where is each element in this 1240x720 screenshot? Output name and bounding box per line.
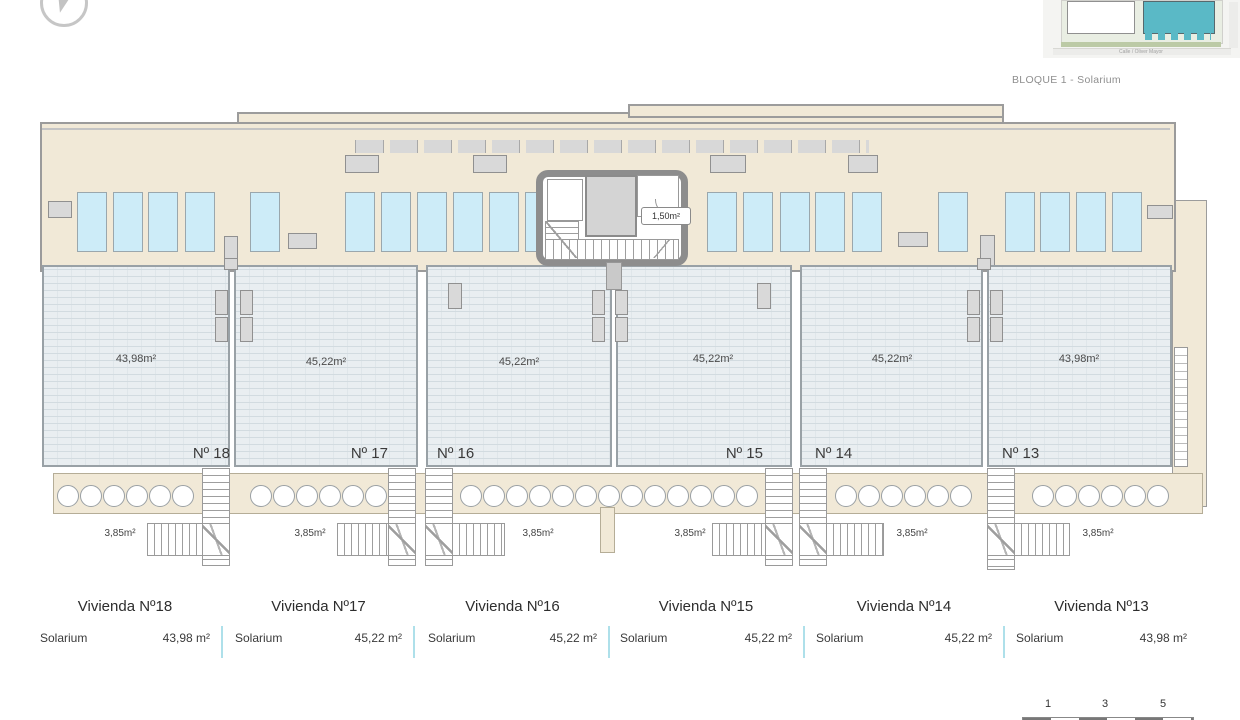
pergola-column bbox=[1124, 485, 1146, 507]
floorplan-page: Calle / Oliver Mayor BLOQUE 1 - Solarium… bbox=[0, 0, 1240, 720]
stair-area-15: 3,85m² bbox=[665, 528, 715, 539]
legend-title: Vivienda Nº14 bbox=[806, 598, 1002, 615]
scalebar-tick: 5 bbox=[1160, 698, 1166, 710]
stair-area-13: 3,85m² bbox=[1073, 528, 1123, 539]
sunbed-icon bbox=[77, 192, 107, 252]
pergola-column bbox=[149, 485, 171, 507]
sunbed-icon bbox=[1112, 192, 1142, 252]
sunbed-icon bbox=[1076, 192, 1106, 252]
sunbed-icon bbox=[250, 192, 280, 252]
unit-stair-flight bbox=[452, 523, 505, 556]
unit-stair-flight bbox=[712, 523, 766, 556]
solarium-floorplan: Nº 18 Nº 17 Nº 16 Nº 15 Nº 14 Nº 13 43,9… bbox=[35, 95, 1215, 580]
pergola-column bbox=[881, 485, 903, 507]
sunbed-icon bbox=[113, 192, 143, 252]
legend-row-label: Solarium bbox=[1016, 631, 1063, 645]
legend-value: 45,22 m² bbox=[355, 631, 402, 645]
unit-stair-flight bbox=[337, 523, 389, 556]
wall-stub bbox=[898, 232, 928, 247]
unit-stair-winder bbox=[425, 523, 453, 556]
stair-area-14: 3,85m² bbox=[887, 528, 937, 539]
legend-col-15: Vivienda Nº15 Solarium45,22 m² bbox=[610, 598, 802, 651]
sunbed-icon bbox=[707, 192, 737, 252]
planter bbox=[967, 290, 980, 315]
legend-title: Vivienda Nº16 bbox=[418, 598, 607, 615]
skylight bbox=[473, 155, 507, 173]
legend-title: Vivienda Nº15 bbox=[610, 598, 802, 615]
legend-divider bbox=[1003, 626, 1005, 658]
unit-number-14: Nº 14 bbox=[815, 445, 875, 462]
unit-stair-winder bbox=[202, 523, 230, 556]
pergola-column bbox=[713, 485, 735, 507]
pergola-column bbox=[319, 485, 341, 507]
core-bottom-stub bbox=[606, 262, 622, 290]
pergola-column bbox=[172, 485, 194, 507]
sunbed-icon bbox=[938, 192, 968, 252]
planter bbox=[592, 317, 605, 342]
unit-number-16: Nº 16 bbox=[437, 445, 497, 462]
terrace bbox=[42, 265, 230, 467]
planter bbox=[967, 317, 980, 342]
site-minimap: Calle / Oliver Mayor bbox=[1043, 0, 1240, 58]
legend-value: 45,22 m² bbox=[745, 631, 792, 645]
wall-stub bbox=[288, 233, 317, 249]
terrace-area-17: 45,22m² bbox=[276, 356, 376, 368]
core-stairs-winder bbox=[545, 221, 577, 258]
skylight bbox=[848, 155, 878, 173]
pergola-column bbox=[506, 485, 528, 507]
legend-col-13: Vivienda Nº13 Solarium43,98 m² bbox=[1006, 598, 1197, 651]
sunbed-icon bbox=[1040, 192, 1070, 252]
deck-inner-wall-line bbox=[42, 128, 1170, 130]
legend-title: Vivienda Nº13 bbox=[1006, 598, 1197, 615]
pergola-column bbox=[103, 485, 125, 507]
pergola-column bbox=[1055, 485, 1077, 507]
sunbed-icon bbox=[345, 192, 375, 252]
pergola-column bbox=[858, 485, 880, 507]
legend-divider bbox=[608, 626, 610, 658]
unit-stair-flight bbox=[147, 523, 203, 556]
sunbed-icon bbox=[780, 192, 810, 252]
planter bbox=[990, 317, 1003, 342]
pergola-column bbox=[1147, 485, 1169, 507]
stair-area-17: 3,85m² bbox=[285, 528, 335, 539]
pergola-column bbox=[342, 485, 364, 507]
minimap-building-1-highlighted bbox=[1143, 1, 1215, 34]
unit-stair-winder bbox=[765, 523, 793, 556]
legend: Vivienda Nº18 Solarium43,98 m² Vivienda … bbox=[0, 598, 1240, 660]
unit-stair-winder bbox=[799, 523, 827, 556]
pergola-column bbox=[950, 485, 972, 507]
pergola-column bbox=[529, 485, 551, 507]
pergola-column bbox=[57, 485, 79, 507]
legend-col-16: Vivienda Nº16 Solarium45,22 m² bbox=[418, 598, 607, 651]
pergola-center-post bbox=[600, 507, 615, 553]
legend-col-14: Vivienda Nº14 Solarium45,22 m² bbox=[806, 598, 1002, 651]
legend-value: 45,22 m² bbox=[945, 631, 992, 645]
minimap-building-1-terraces bbox=[1145, 33, 1211, 40]
pergola-column bbox=[835, 485, 857, 507]
unit-stair-flight bbox=[826, 523, 884, 556]
pergola-column bbox=[126, 485, 148, 507]
legend-col-18: Vivienda Nº18 Solarium43,98 m² bbox=[30, 598, 220, 651]
pergola-column bbox=[460, 485, 482, 507]
pergola-column bbox=[296, 485, 318, 507]
unit-stair-winder bbox=[987, 523, 1015, 556]
minimap-side-road bbox=[1229, 2, 1238, 48]
legend-value: 43,98 m² bbox=[1140, 631, 1187, 645]
legend-divider bbox=[803, 626, 805, 658]
sunbed-icon bbox=[489, 192, 519, 252]
unit-number-15: Nº 15 bbox=[703, 445, 763, 462]
legend-divider bbox=[221, 626, 223, 658]
skylight bbox=[710, 155, 746, 173]
pergola-column bbox=[1032, 485, 1054, 507]
planter bbox=[448, 283, 462, 309]
unit-number-13: Nº 13 bbox=[1002, 445, 1062, 462]
elevator-shaft bbox=[585, 175, 637, 237]
wall-stub bbox=[48, 201, 72, 218]
minimap-street-label: Calle / Oliver Mayor bbox=[1081, 49, 1201, 55]
pergola-column bbox=[667, 485, 689, 507]
pergola-column bbox=[483, 485, 505, 507]
core-stairs-winder-right bbox=[647, 239, 677, 258]
planter bbox=[215, 317, 228, 342]
divider-cap bbox=[224, 258, 238, 270]
sunbed-icon bbox=[1005, 192, 1035, 252]
pergola-column bbox=[644, 485, 666, 507]
stair-area-18: 3,85m² bbox=[95, 528, 145, 539]
pergola-column bbox=[1101, 485, 1123, 507]
minimap-garden-strip bbox=[1061, 42, 1221, 47]
legend-value: 43,98 m² bbox=[163, 631, 210, 645]
storage-area-tag: 1,50m² bbox=[641, 207, 691, 225]
terrace-area-16: 45,22m² bbox=[469, 356, 569, 368]
sunbed-icon bbox=[185, 192, 215, 252]
roof-parapet-upper bbox=[628, 104, 1004, 118]
pergola-column bbox=[575, 485, 597, 507]
minimap-building-2 bbox=[1067, 1, 1135, 34]
stair-core: 1,50m² bbox=[536, 170, 688, 266]
pergola-column bbox=[927, 485, 949, 507]
scalebar-tick: 1 bbox=[1045, 698, 1051, 710]
divider-cap bbox=[977, 258, 991, 270]
pergola-column bbox=[80, 485, 102, 507]
skylight bbox=[345, 155, 379, 173]
wall-stub bbox=[1147, 205, 1173, 219]
planter bbox=[990, 290, 1003, 315]
scalebar: 1 3 5 bbox=[1010, 698, 1210, 720]
sunbed-icon bbox=[453, 192, 483, 252]
pergola-column bbox=[1078, 485, 1100, 507]
roof-vents-row bbox=[355, 140, 869, 153]
pergola-column bbox=[552, 485, 574, 507]
core-room-left bbox=[547, 179, 583, 221]
sunbed-icon bbox=[743, 192, 773, 252]
unit-number-17: Nº 17 bbox=[330, 445, 388, 462]
block-title: BLOQUE 1 - Solarium bbox=[1012, 74, 1232, 86]
planter bbox=[615, 290, 628, 315]
legend-row-label: Solarium bbox=[816, 631, 863, 645]
pergola-column bbox=[273, 485, 295, 507]
pergola-column bbox=[621, 485, 643, 507]
sunbed-icon bbox=[417, 192, 447, 252]
planter bbox=[240, 290, 253, 315]
legend-row-label: Solarium bbox=[40, 631, 87, 645]
planter bbox=[757, 283, 771, 309]
legend-row-label: Solarium bbox=[235, 631, 282, 645]
terrace-area-14: 45,22m² bbox=[842, 353, 942, 365]
sunbed-icon bbox=[381, 192, 411, 252]
annex-ladder bbox=[1174, 347, 1188, 467]
legend-divider bbox=[413, 626, 415, 658]
terrace-area-18: 43,98m² bbox=[86, 353, 186, 365]
pergola-column bbox=[365, 485, 387, 507]
terrace bbox=[987, 265, 1172, 467]
legend-row-label: Solarium bbox=[428, 631, 475, 645]
planter bbox=[215, 290, 228, 315]
sunbed-icon bbox=[148, 192, 178, 252]
unit-stair-winder bbox=[388, 523, 416, 556]
pergola-column bbox=[598, 485, 620, 507]
planter bbox=[615, 317, 628, 342]
unit-stair-flight bbox=[1014, 523, 1070, 556]
planter bbox=[592, 290, 605, 315]
pergola-column bbox=[690, 485, 712, 507]
pergola-column bbox=[250, 485, 272, 507]
terrace bbox=[800, 265, 983, 467]
planter bbox=[240, 317, 253, 342]
legend-title: Vivienda Nº18 bbox=[30, 598, 220, 615]
legend-row-label: Solarium bbox=[620, 631, 667, 645]
legend-title: Vivienda Nº17 bbox=[225, 598, 412, 615]
scalebar-tick: 3 bbox=[1102, 698, 1108, 710]
legend-value: 45,22 m² bbox=[550, 631, 597, 645]
pergola-column bbox=[904, 485, 926, 507]
terrace-area-13: 43,98m² bbox=[1029, 353, 1129, 365]
sunbed-icon bbox=[852, 192, 882, 252]
terrace-area-15: 45,22m² bbox=[663, 353, 763, 365]
stair-area-16: 3,85m² bbox=[513, 528, 563, 539]
unit-number-18: Nº 18 bbox=[155, 445, 230, 462]
pergola-column bbox=[736, 485, 758, 507]
sunbed-icon bbox=[815, 192, 845, 252]
legend-col-17: Vivienda Nº17 Solarium45,22 m² bbox=[225, 598, 412, 651]
